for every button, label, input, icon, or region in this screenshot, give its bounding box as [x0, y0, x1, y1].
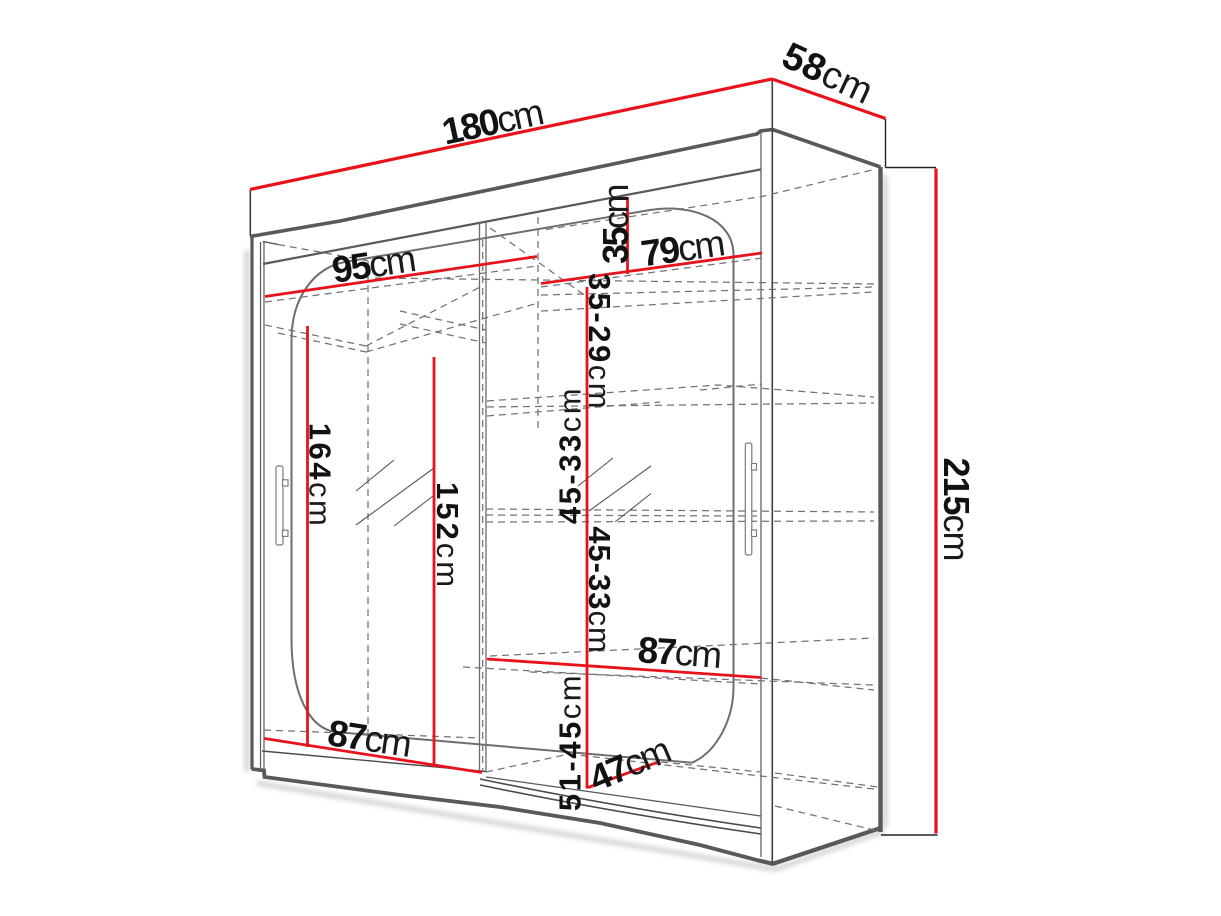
svg-text:87cm: 87cm — [636, 629, 721, 676]
svg-text:45-33cm: 45-33cm — [553, 386, 588, 524]
svg-text:51-45cm: 51-45cm — [553, 673, 588, 811]
svg-text:152cm: 152cm — [430, 482, 465, 590]
svg-text:45-33cm: 45-33cm — [582, 526, 617, 654]
svg-text:35cm: 35cm — [595, 185, 636, 264]
svg-text:215cm: 215cm — [936, 457, 977, 560]
svg-text:164cm: 164cm — [303, 423, 338, 529]
